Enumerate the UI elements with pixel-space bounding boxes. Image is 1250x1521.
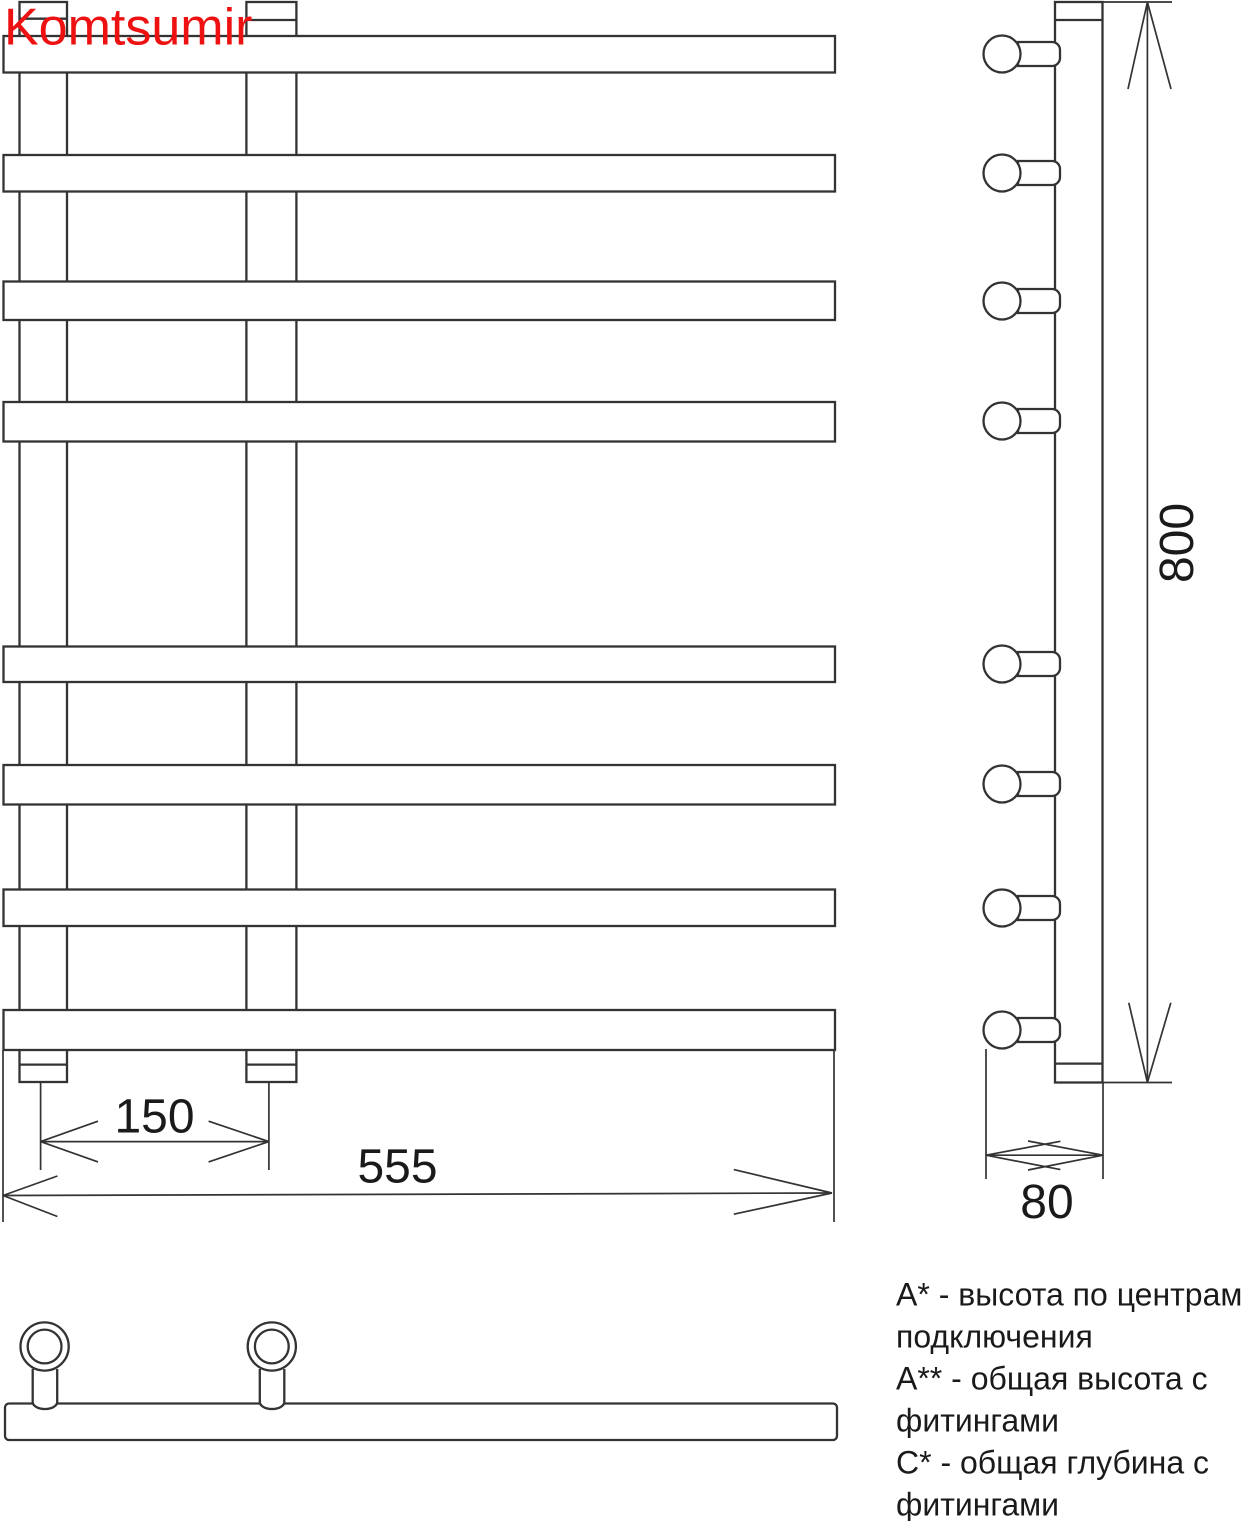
svg-text:800: 800 [1151,503,1204,583]
svg-text:С* - общая глубина с: С* - общая глубина с [896,1445,1209,1481]
svg-text:фитингами: фитингами [896,1403,1059,1439]
svg-text:подключения: подключения [896,1319,1093,1355]
svg-text:фитингами: фитингами [896,1487,1059,1521]
svg-text:А* - высота по центрам: А* - высота по центрам [896,1277,1242,1313]
svg-text:150: 150 [114,1090,194,1143]
svg-text:80: 80 [1020,1176,1073,1229]
svg-text:555: 555 [357,1140,437,1193]
svg-text:А** - общая высота с: А** - общая высота с [896,1361,1208,1397]
svg-text:Komtsumir: Komtsumir [4,0,252,57]
